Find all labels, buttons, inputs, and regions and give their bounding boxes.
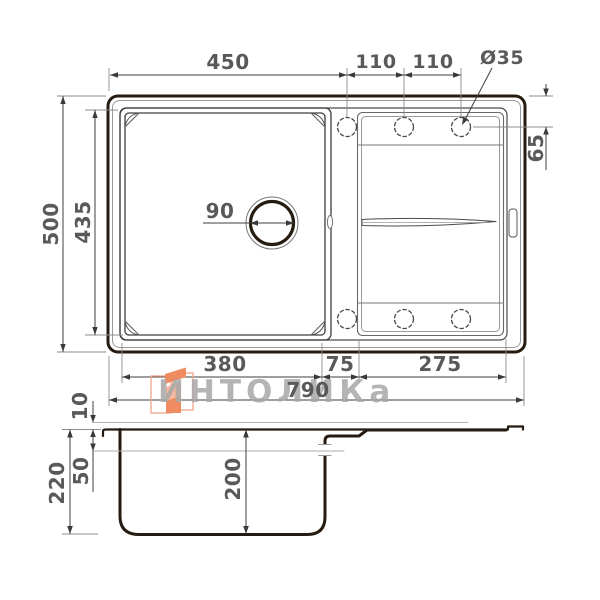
dim-hole-offset: 65: [524, 134, 548, 163]
dim-hole-pitch-right: 110: [412, 51, 453, 73]
dim-drain-diameter: 90: [206, 199, 235, 223]
watermark-text: ИНТОЛИКа: [158, 374, 395, 410]
dim-overall-height: 220: [45, 461, 69, 504]
dim-overall-depth: 500: [39, 202, 63, 245]
dim-hole-diameter: Ø35: [480, 47, 524, 69]
drawing-canvas: [0, 0, 600, 600]
top-view-drawing: [108, 96, 525, 352]
dim-overall-width: 790: [286, 378, 329, 402]
dim-hole-pitch-left: 110: [355, 51, 396, 73]
dim-bowl-inner-width: 380: [203, 352, 246, 376]
dim-bowl-to-board-gap: 75: [326, 352, 355, 376]
dim-rim-height: 10: [68, 392, 92, 421]
dim-drainboard-width: 275: [418, 352, 461, 376]
dim-bowl-depth: 200: [221, 457, 245, 500]
side-view-drawing: [93, 423, 523, 535]
watermark: ИНТОЛИКа: [149, 367, 395, 417]
sink-dimension-drawing: ИНТОЛИКа 450 110 110 Ø35 65 500 435 90 3…: [0, 0, 600, 600]
dim-bowl-length: 435: [71, 200, 95, 243]
dim-bowl-width: 450: [206, 50, 249, 74]
dim-overflow-level: 50: [69, 457, 93, 486]
